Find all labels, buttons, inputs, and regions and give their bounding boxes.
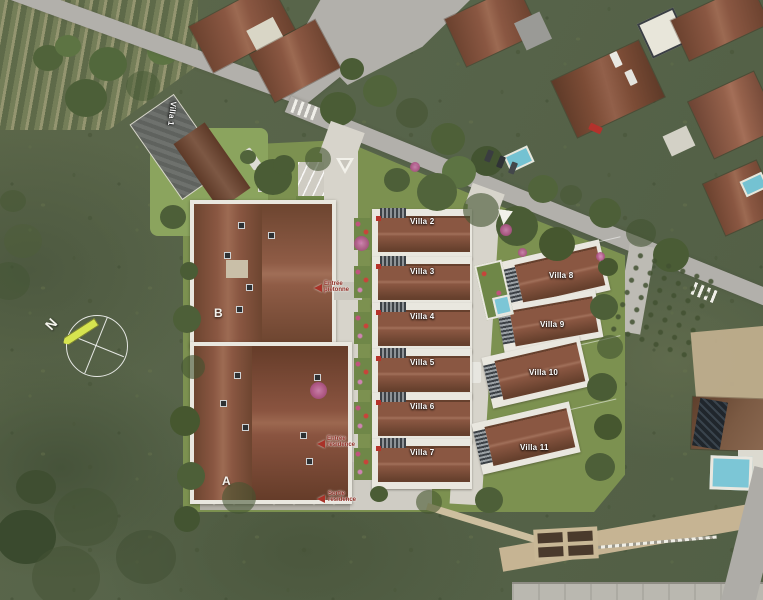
pedestrian-entrance-text: Entrée piétonne	[324, 281, 349, 293]
building-a-label: A	[222, 474, 231, 488]
entry-marker	[376, 356, 381, 361]
crosswalk-west	[290, 99, 319, 121]
flower-garden	[354, 448, 372, 480]
entry-marker	[376, 446, 381, 451]
neighbour-pool	[503, 145, 534, 172]
flowering-tree	[354, 236, 369, 251]
villa-4-label: Villa 4	[410, 312, 434, 321]
flower-garden	[354, 402, 372, 434]
skylight	[246, 284, 253, 291]
flowering-tree	[500, 224, 512, 236]
bush-cluster	[16, 470, 56, 504]
tree-cluster	[55, 35, 81, 57]
flowering-tree	[310, 382, 327, 399]
skylight	[314, 374, 321, 381]
flower-garden	[354, 358, 372, 390]
pergola	[380, 348, 406, 358]
building-b-roof	[262, 204, 332, 344]
tree-cluster	[160, 205, 186, 229]
skylight	[242, 424, 249, 431]
villa-2: Villa 2	[352, 212, 474, 258]
entry-marker	[376, 264, 381, 269]
neighbour-house	[671, 0, 763, 61]
garden-plots-frame	[533, 526, 599, 561]
aerial-site-plan: Villa 1 B A Villa 2	[0, 0, 763, 600]
villa-6-label: Villa 6	[410, 402, 434, 411]
residence-exit-text: Sortie résidence	[328, 491, 356, 503]
skylight	[224, 252, 231, 259]
garden-shed	[258, 178, 280, 192]
neighbour-house	[551, 41, 664, 138]
pergola	[380, 392, 406, 402]
villa-7: Villa 7	[352, 442, 474, 488]
flower-garden	[354, 266, 372, 298]
pergola	[380, 302, 406, 312]
villa-3-label: Villa 3	[410, 267, 434, 276]
villa-2-label: Villa 2	[410, 217, 434, 226]
villa-6: Villa 6	[352, 396, 474, 442]
garden-plot	[538, 546, 563, 557]
neighbour-house	[703, 161, 763, 236]
villa-9-label: Villa 9	[540, 320, 564, 329]
annotation-line: résidence	[327, 442, 355, 448]
swimming-pool	[709, 455, 752, 490]
flowering-tree	[518, 248, 527, 257]
garden-plot	[567, 531, 592, 542]
residence-exit-arrow	[317, 495, 325, 503]
entry-marker	[376, 216, 381, 221]
residence-entrance-text: Entrée résidence	[327, 436, 355, 448]
skylight	[268, 232, 275, 239]
garden-plot	[568, 545, 593, 556]
annotation-line: résidence	[328, 497, 356, 503]
bush-cluster	[0, 190, 26, 212]
tree-cluster	[240, 150, 256, 164]
flower-garden	[354, 312, 372, 344]
roof-terrace	[226, 260, 248, 278]
skylight	[234, 372, 241, 379]
neighbour-garage	[663, 126, 696, 157]
entry-marker	[376, 310, 381, 315]
villa-5-label: Villa 5	[410, 358, 434, 367]
skylight	[300, 432, 307, 439]
neighbour-house	[688, 72, 763, 159]
annotation-line: piétonne	[324, 287, 349, 293]
pedestrian-entrance-arrow	[314, 284, 322, 292]
villa-10-label: Villa 10	[529, 368, 558, 377]
garden-plot	[537, 532, 562, 543]
villa-7-label: Villa 7	[410, 448, 434, 457]
skylight	[236, 306, 243, 313]
villa-5: Villa 5	[352, 352, 474, 398]
tree-cluster	[340, 58, 364, 80]
building-a-roof	[252, 346, 348, 500]
residence-entrance-arrow	[317, 440, 325, 448]
flowering-tree	[596, 252, 605, 261]
villa-3: Villa 3	[352, 260, 474, 306]
villa-8-label: Villa 8	[549, 271, 573, 280]
pergola	[380, 438, 406, 448]
compass-north-label: N	[42, 315, 61, 333]
skylight	[306, 458, 313, 465]
parked-car	[496, 155, 506, 168]
pergola	[380, 208, 406, 218]
skylight	[238, 222, 245, 229]
tree-cluster	[180, 262, 198, 280]
tree-cluster	[384, 168, 410, 192]
parked-car	[484, 149, 494, 162]
pergola	[380, 256, 406, 266]
flowering-tree	[410, 162, 420, 172]
tree-cluster	[560, 185, 582, 205]
skylight	[220, 400, 227, 407]
villa-11-label: Villa 11	[520, 443, 549, 452]
villa-4: Villa 4	[352, 306, 474, 352]
building-b-label: B	[214, 306, 223, 320]
tree-cluster	[370, 486, 388, 502]
entry-marker	[376, 400, 381, 405]
